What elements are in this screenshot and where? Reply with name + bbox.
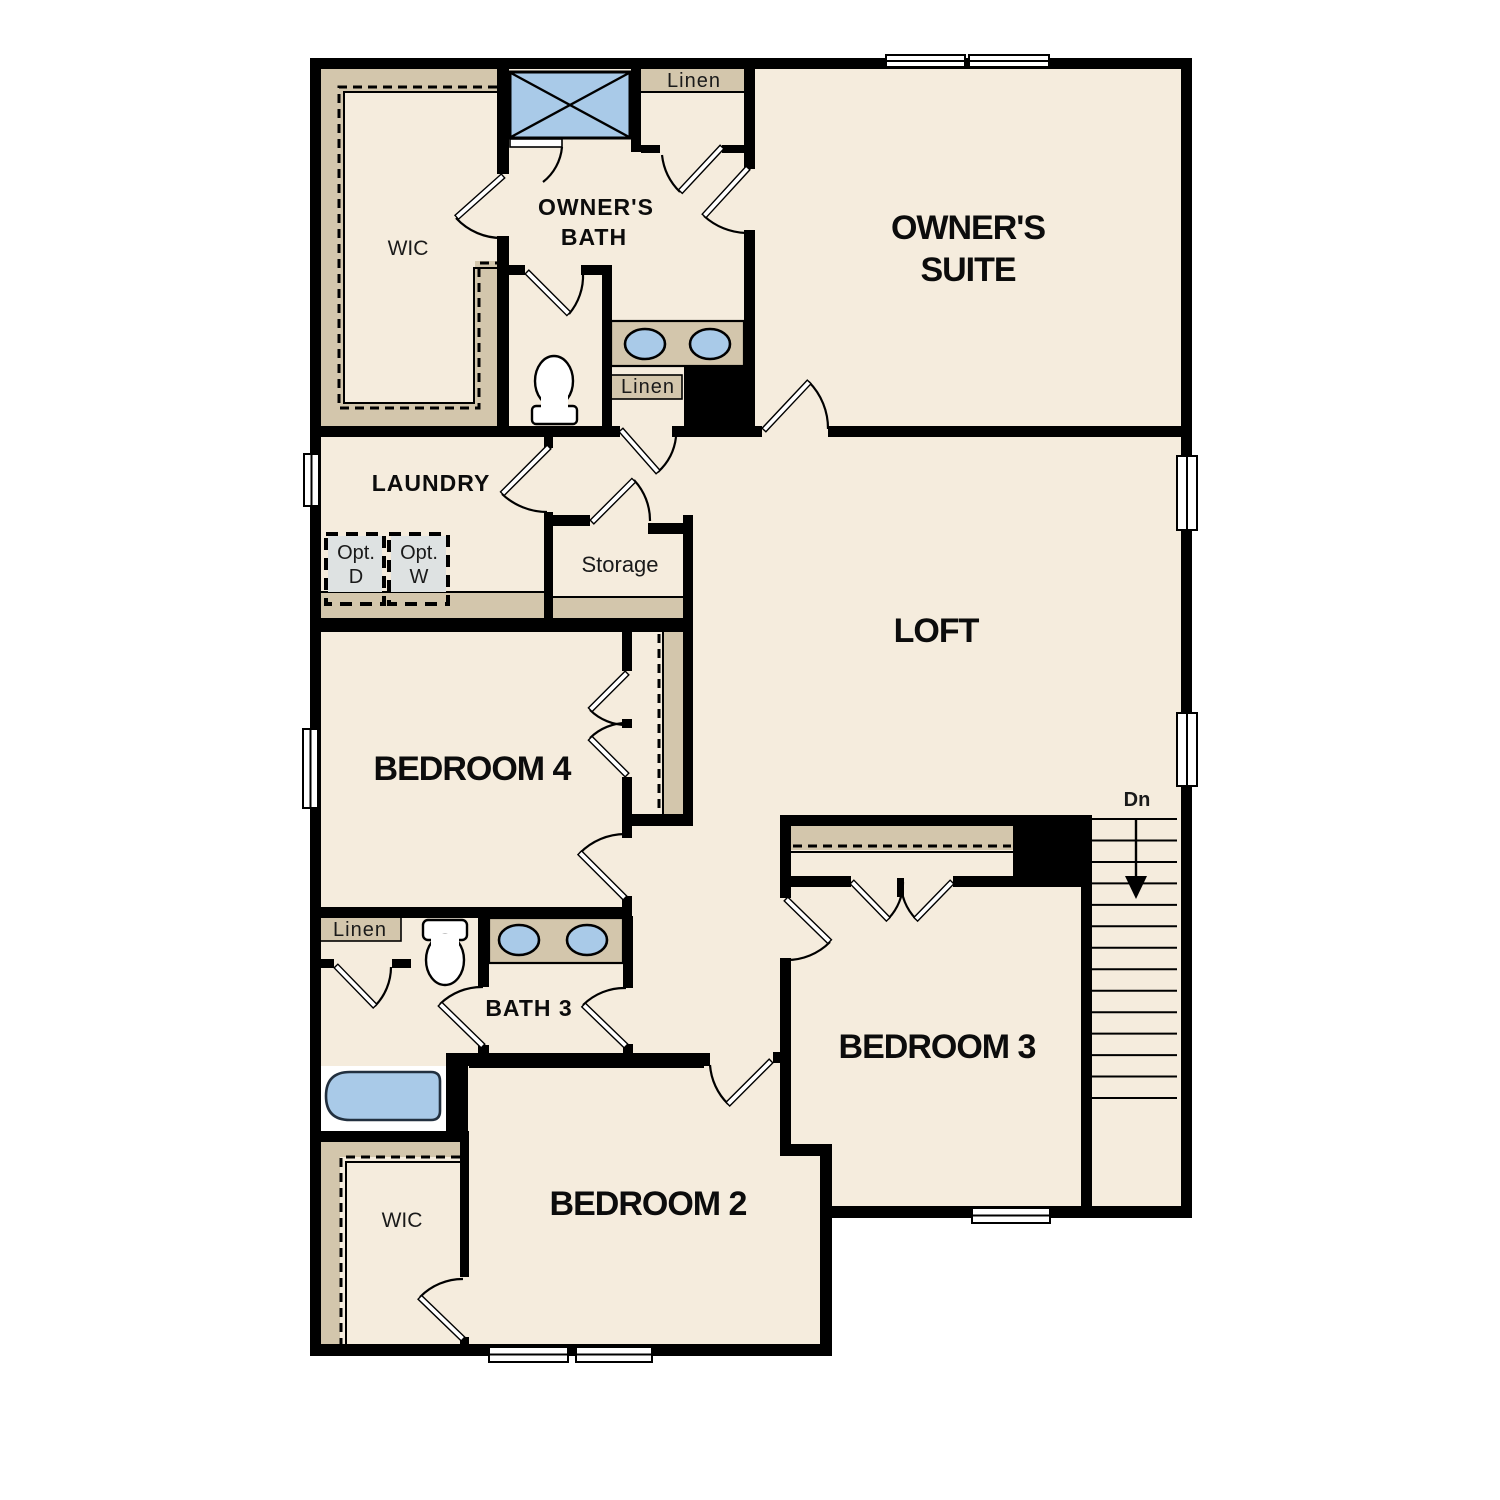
svg-text:LOFT: LOFT [894,612,980,650]
svg-text:Linen: Linen [667,70,721,92]
svg-text:LAUNDRY: LAUNDRY [372,470,491,496]
svg-text:SUITE: SUITE [920,251,1015,289]
svg-text:Linen: Linen [621,376,675,398]
svg-text:BEDROOM 3: BEDROOM 3 [839,1028,1036,1066]
svg-text:BEDROOM 2: BEDROOM 2 [550,1185,747,1223]
svg-text:W: W [410,566,429,588]
svg-text:D: D [349,566,363,588]
svg-text:OWNER'S: OWNER'S [891,209,1045,247]
svg-text:WIC: WIC [382,1209,423,1232]
svg-text:OWNER'S: OWNER'S [538,194,654,220]
svg-text:Linen: Linen [333,919,387,941]
svg-text:BEDROOM 4: BEDROOM 4 [374,750,572,788]
svg-text:Storage: Storage [581,552,658,577]
svg-text:Opt.: Opt. [337,542,375,564]
svg-text:Opt.: Opt. [400,542,438,564]
svg-text:Dn: Dn [1124,789,1151,811]
svg-text:WIC: WIC [388,237,429,260]
svg-text:BATH 3: BATH 3 [485,995,572,1021]
svg-text:BATH: BATH [561,224,627,250]
